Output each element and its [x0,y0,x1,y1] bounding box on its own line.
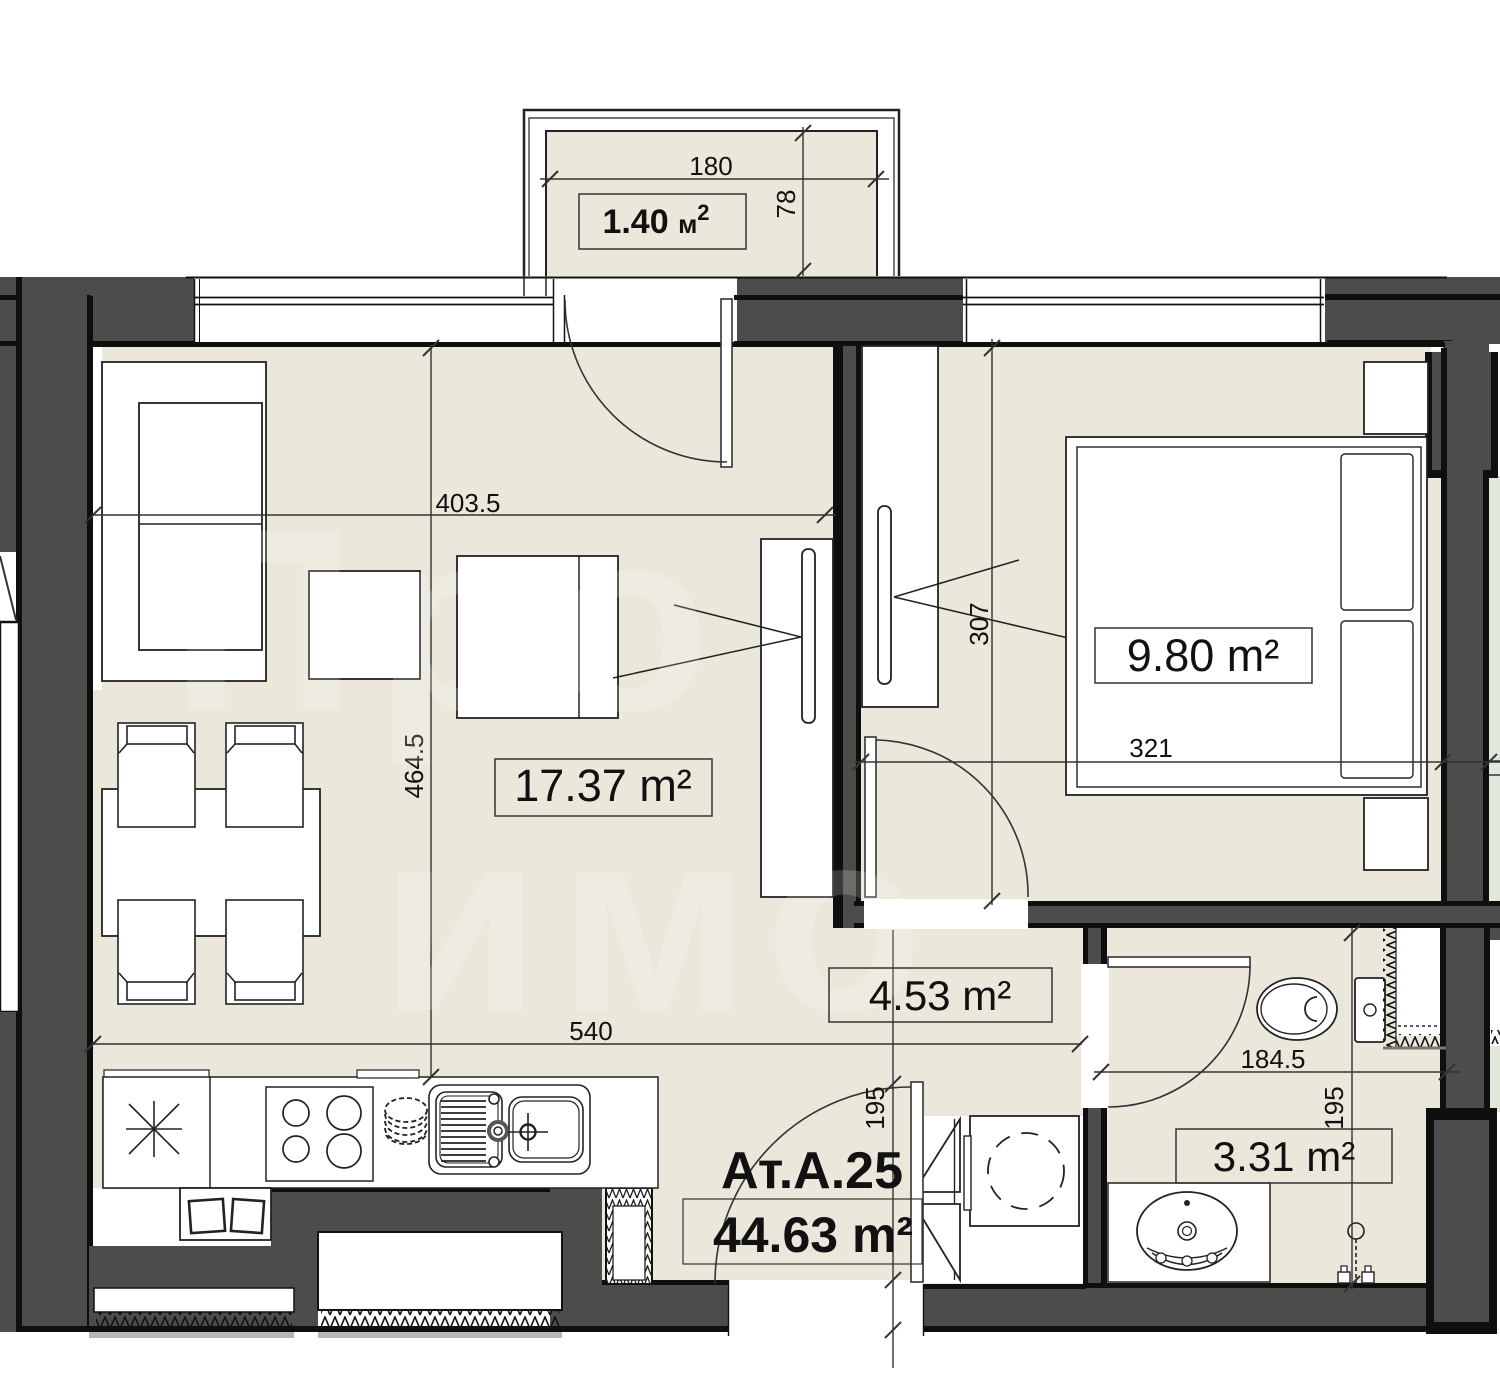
svg-text:195: 195 [1319,1086,1349,1129]
svg-text:180: 180 [689,151,732,181]
svg-text:307: 307 [964,602,994,645]
svg-text:17.37 m²: 17.37 m² [514,760,692,811]
svg-text:Про: Про [170,476,729,767]
svg-text:3.31 m²: 3.31 m² [1213,1133,1355,1180]
svg-text:78: 78 [771,190,801,219]
svg-text:321: 321 [1129,733,1172,763]
svg-text:184.5: 184.5 [1240,1044,1305,1074]
svg-text:Ат.А.25: Ат.А.25 [721,1142,903,1200]
svg-text:195: 195 [860,1086,890,1129]
svg-text:44.63 m²: 44.63 m² [713,1207,913,1263]
svg-text:9.80 m²: 9.80 m² [1127,630,1280,681]
svg-text:4.53 m²: 4.53 m² [869,972,1011,1019]
